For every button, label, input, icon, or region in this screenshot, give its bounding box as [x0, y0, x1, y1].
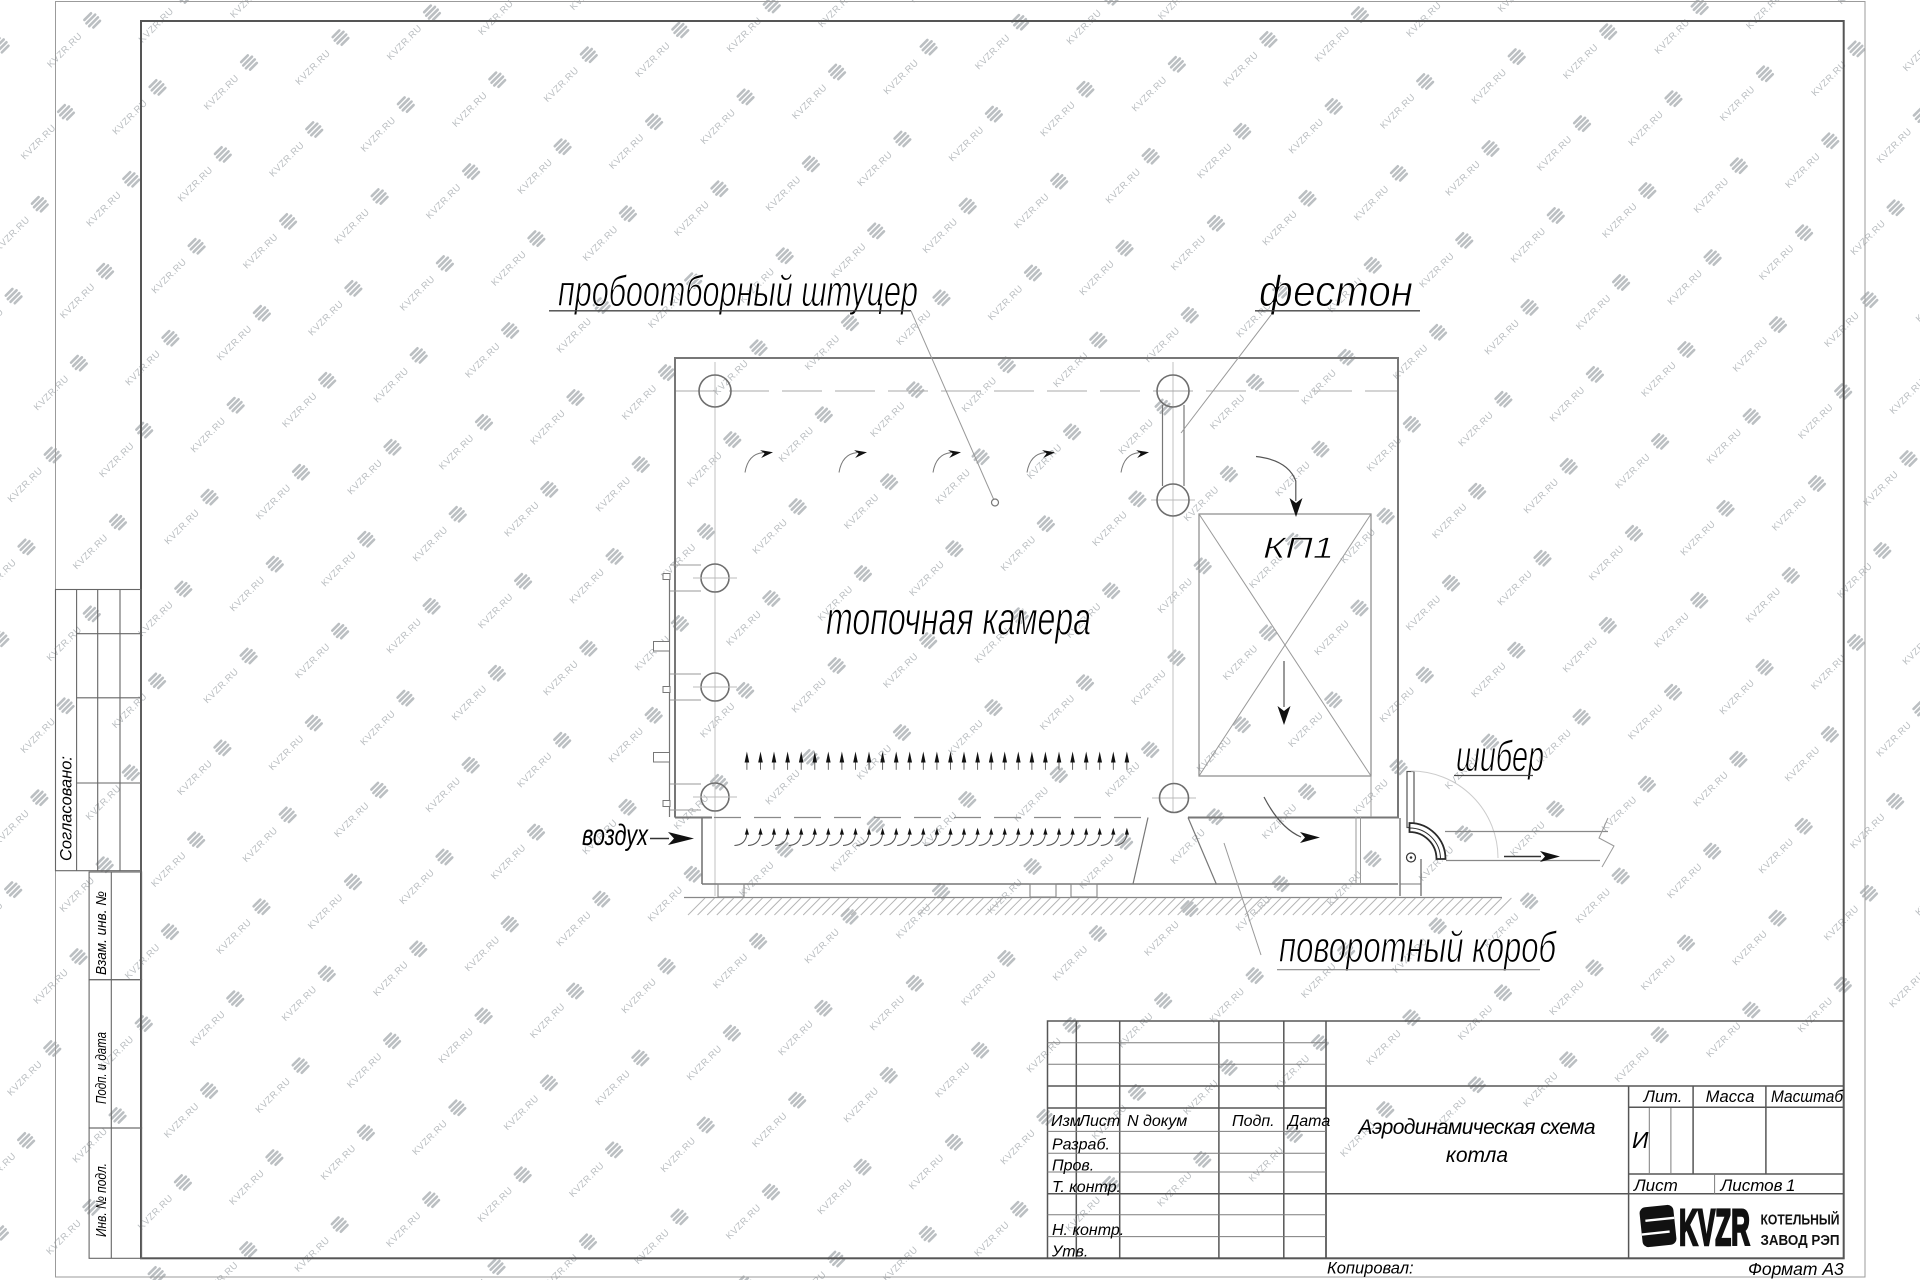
- svg-text:Лист: Лист: [1078, 1113, 1120, 1130]
- svg-text:Изм: Изм: [1051, 1113, 1081, 1130]
- svg-text:Взам. инв. №: Взам. инв. №: [94, 891, 110, 975]
- svg-text:Формат А3: Формат А3: [1748, 1259, 1844, 1279]
- svg-text:Подп. и дата: Подп. и дата: [94, 1032, 110, 1104]
- svg-text:фестон: фестон: [1259, 267, 1413, 316]
- svg-text:Подп.: Подп.: [1232, 1113, 1275, 1130]
- svg-text:Т. контр.: Т. контр.: [1052, 1179, 1121, 1196]
- svg-text:Инв. № подл.: Инв. № подл.: [94, 1163, 110, 1237]
- svg-text:Масса: Масса: [1706, 1088, 1755, 1106]
- svg-text:Пров.: Пров.: [1052, 1158, 1094, 1175]
- svg-text:Лист: Лист: [1633, 1176, 1678, 1195]
- svg-text:Листов: Листов: [1720, 1176, 1783, 1195]
- svg-text:Дата: Дата: [1286, 1113, 1330, 1130]
- svg-text:Аэродинамическая схема: Аэродинамическая схема: [1357, 1116, 1596, 1139]
- svg-text:ЗАВОД РЭП: ЗАВОД РЭП: [1761, 1233, 1840, 1249]
- svg-text:топочная камера: топочная камера: [826, 593, 1091, 645]
- svg-text:Утв.: Утв.: [1051, 1244, 1088, 1261]
- svg-text:воздух: воздух: [582, 819, 649, 852]
- svg-text:Н. контр.: Н. контр.: [1052, 1222, 1124, 1239]
- svg-text:Масштаб: Масштаб: [1771, 1088, 1844, 1106]
- svg-text:КП1: КП1: [1263, 532, 1334, 565]
- svg-text:Согласовано:: Согласовано:: [58, 756, 76, 861]
- svg-text:КОТЕЛЬНЫЙ: КОТЕЛЬНЫЙ: [1761, 1211, 1840, 1229]
- svg-text:Копировал:: Копировал:: [1327, 1259, 1414, 1277]
- svg-text:И: И: [1632, 1127, 1649, 1153]
- svg-text:котла: котла: [1446, 1144, 1508, 1167]
- svg-text:пробоотборный штуцер: пробоотборный штуцер: [558, 267, 918, 316]
- svg-text:Лит.: Лит.: [1643, 1088, 1683, 1106]
- svg-text:KVZR: KVZR: [1679, 1199, 1750, 1256]
- svg-text:Разраб.: Разраб.: [1052, 1137, 1110, 1154]
- svg-text:шибер: шибер: [1456, 732, 1544, 781]
- svg-text:1: 1: [1786, 1176, 1795, 1195]
- svg-text:N докум: N докум: [1127, 1113, 1187, 1130]
- svg-text:поворотный короб: поворотный короб: [1279, 923, 1558, 972]
